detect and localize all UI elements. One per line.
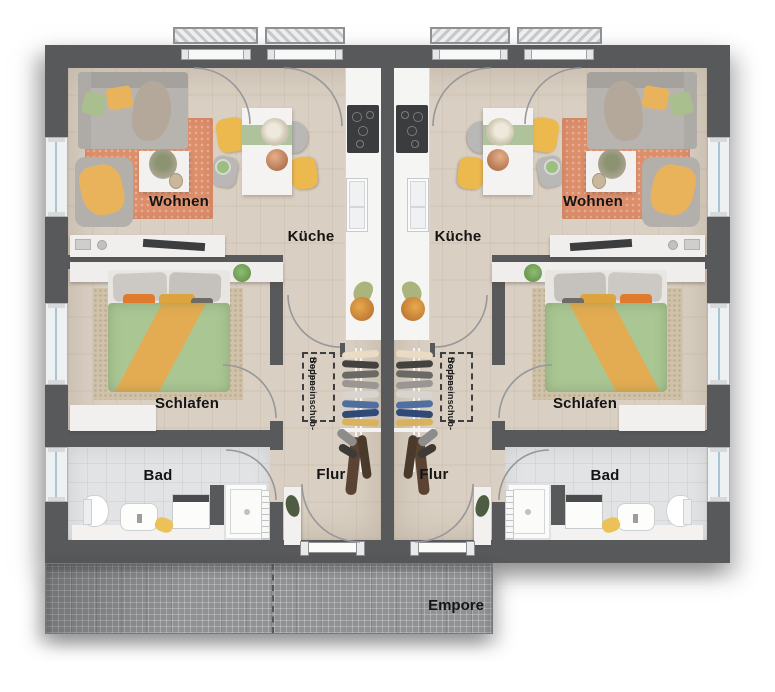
door-swing-arcs <box>45 45 381 563</box>
awning-hatch <box>265 27 345 44</box>
awning-hatch <box>517 27 602 44</box>
door-swing-arcs <box>394 45 730 563</box>
gallery-shadow <box>46 564 272 633</box>
gallery-divider-dashed <box>272 564 274 633</box>
awning-hatch <box>173 27 258 44</box>
party-wall <box>381 45 394 563</box>
gallery-label: Empore <box>421 597 491 614</box>
floorplan-canvas: Empore Wohnen Wohnen Küche Küche Schlafe… <box>0 0 775 692</box>
gallery-empore: Empore <box>45 563 493 634</box>
floor-plan: Empore Wohnen Wohnen Küche Küche Schlafe… <box>0 0 775 692</box>
unit-right <box>394 45 730 563</box>
awning-hatch <box>430 27 510 44</box>
unit-left <box>45 45 381 563</box>
